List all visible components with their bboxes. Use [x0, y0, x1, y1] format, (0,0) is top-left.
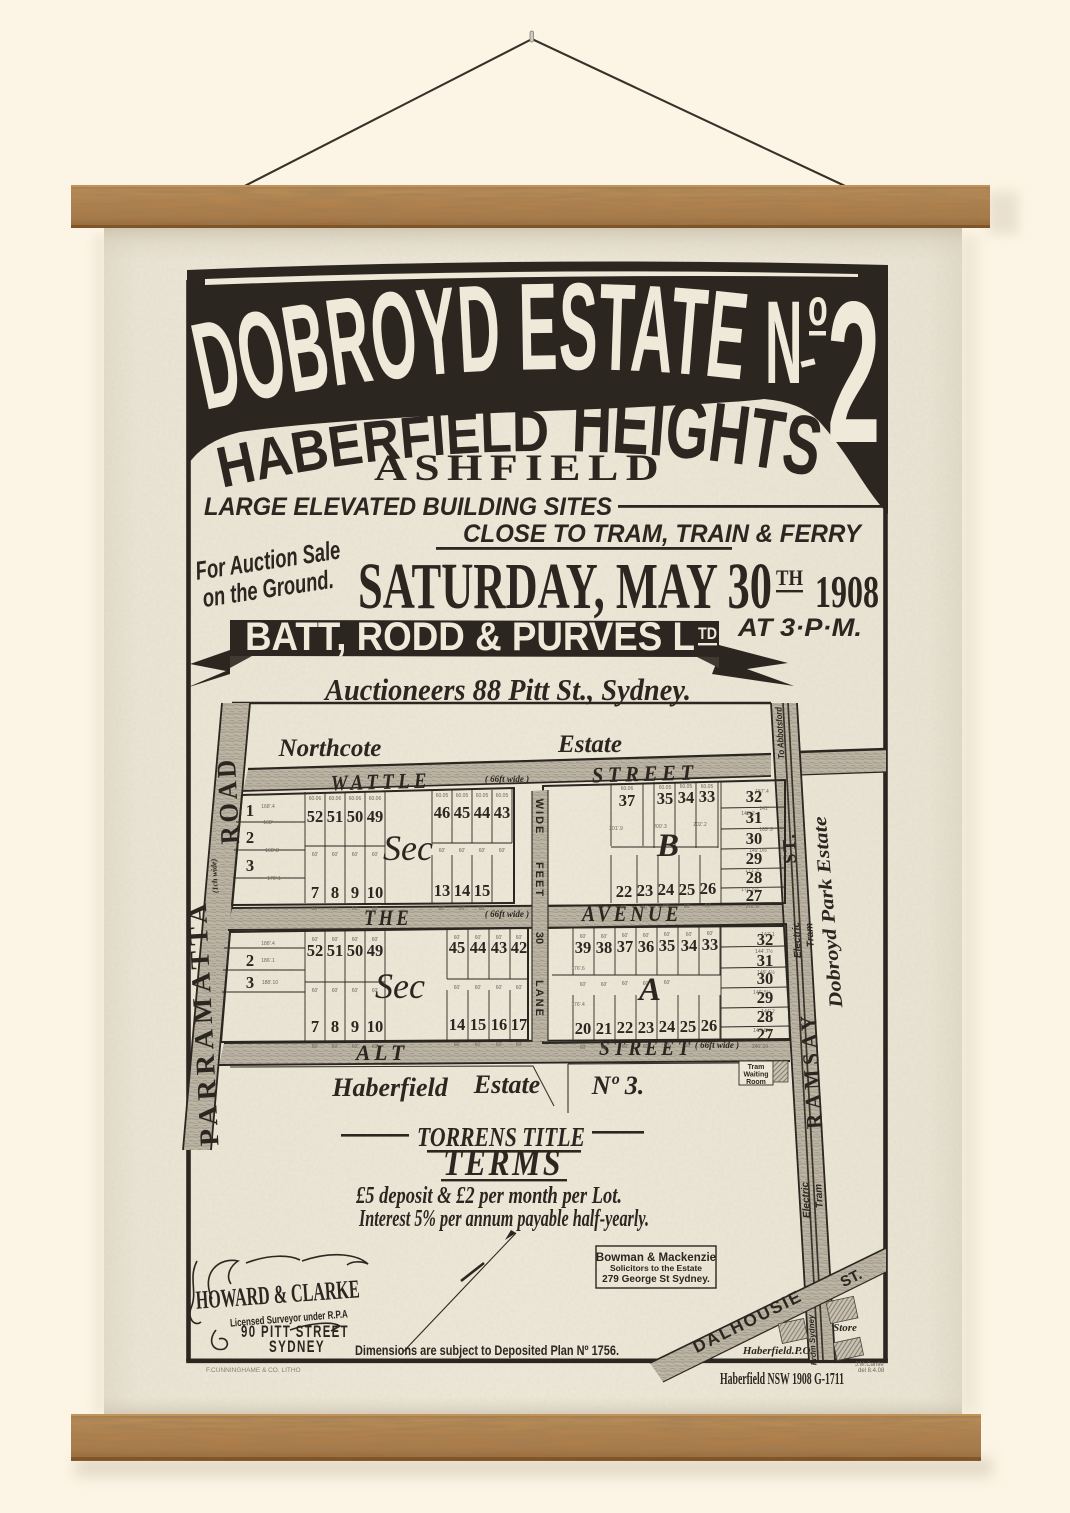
svg-text:168': 168'	[263, 820, 272, 826]
svg-text:60': 60'	[707, 931, 714, 937]
svg-text:26: 26	[700, 879, 717, 898]
svg-text:60': 60'	[664, 980, 671, 986]
svg-text:60': 60'	[621, 905, 628, 911]
svg-text:51: 51	[327, 807, 344, 826]
svg-text:60': 60'	[372, 852, 379, 858]
svg-text:60': 60'	[352, 906, 359, 912]
svg-text:43: 43	[494, 803, 511, 822]
svg-text:60.06: 60.06	[369, 796, 382, 802]
svg-text:37: 37	[617, 937, 634, 956]
svg-text:Electric: Electric	[800, 1181, 813, 1218]
svg-text:Store: Store	[833, 1322, 857, 1334]
svg-text:7: 7	[311, 883, 319, 902]
svg-text:CLOSE TO TRAM, TRAIN & FERRY: CLOSE TO TRAM, TRAIN & FERRY	[463, 520, 863, 548]
svg-text:44: 44	[474, 803, 491, 822]
svg-text:49: 49	[367, 807, 384, 826]
svg-text:LARGE ELEVATED BUILDING SITES: LARGE ELEVATED BUILDING SITES	[204, 493, 612, 521]
svg-text:168'.4: 168'.4	[261, 804, 275, 810]
svg-text:3: 3	[246, 973, 254, 992]
svg-text:170'.1: 170'.1	[267, 876, 281, 882]
svg-text:Haberfield: Haberfield	[331, 1073, 449, 1102]
svg-text:50: 50	[347, 807, 364, 826]
svg-text:N: N	[765, 277, 802, 409]
svg-text:Nº 3.: Nº 3.	[591, 1071, 645, 1100]
svg-text:176'.6: 176'.6	[571, 966, 585, 972]
svg-text:o: o	[808, 279, 828, 337]
svg-text:23: 23	[637, 881, 654, 900]
svg-text:60': 60'	[622, 981, 629, 987]
svg-text:149'.4½: 149'.4½	[757, 969, 775, 976]
svg-text:60.05: 60.05	[659, 785, 672, 791]
svg-text:1: 1	[246, 801, 254, 820]
svg-text:( 66ft wide ): ( 66ft wide )	[485, 774, 529, 784]
svg-text:60': 60'	[516, 985, 523, 991]
svg-text:35: 35	[659, 936, 676, 955]
svg-text:60': 60'	[496, 985, 503, 991]
svg-text:60': 60'	[332, 1044, 339, 1050]
svg-text:60': 60'	[706, 1042, 713, 1048]
svg-text:(1ch wide): (1ch wide)	[209, 858, 220, 893]
svg-text:14: 14	[449, 1015, 466, 1034]
svg-text:60': 60'	[459, 848, 466, 854]
svg-text:2: 2	[246, 828, 254, 847]
svg-text:33: 33	[702, 935, 719, 954]
svg-text:10: 10	[367, 1017, 384, 1036]
svg-text:60': 60'	[352, 937, 359, 943]
svg-text:24: 24	[659, 1017, 676, 1036]
svg-text:60': 60'	[601, 934, 608, 940]
svg-text:60': 60'	[332, 852, 339, 858]
svg-text:Haberfield.P.O.: Haberfield.P.O.	[742, 1345, 813, 1357]
svg-text:60': 60'	[312, 852, 319, 858]
svg-text:15: 15	[474, 881, 491, 900]
svg-text:9: 9	[351, 883, 359, 902]
svg-text:25: 25	[679, 880, 696, 899]
svg-text:60': 60'	[684, 904, 691, 910]
svg-text:144'.2: 144'.2	[761, 1009, 775, 1015]
svg-text:176'.4: 176'.4	[571, 1002, 585, 1008]
svg-text:37: 37	[619, 791, 636, 810]
svg-text:240'.10: 240'.10	[752, 1044, 768, 1050]
svg-text:B: B	[656, 828, 679, 864]
svg-text:60': 60'	[643, 933, 650, 939]
svg-text:TD: TD	[698, 624, 717, 643]
svg-text:60': 60'	[372, 1044, 379, 1050]
svg-text:Dimensions are subject to: Dimensions are subject to Deposited Plan…	[355, 1342, 619, 1358]
svg-text:60': 60'	[454, 1042, 461, 1048]
svg-text:45: 45	[454, 803, 471, 822]
svg-text:146'.2: 146'.2	[741, 811, 755, 817]
svg-text:60': 60'	[439, 848, 446, 854]
svg-text:A: A	[637, 972, 661, 1008]
svg-text:Solicitors to the Estate: Solicitors to the Estate	[610, 1263, 702, 1273]
svg-text:188'.10: 188'.10	[262, 980, 278, 986]
svg-text:146'.5½: 146'.5½	[753, 989, 771, 996]
svg-text:141': 141'	[759, 806, 768, 812]
svg-text:34: 34	[678, 788, 695, 807]
svg-text:9: 9	[351, 1017, 359, 1036]
svg-text:178'.6: 178'.6	[745, 904, 759, 910]
svg-text:168'.8: 168'.8	[265, 848, 279, 854]
svg-text:Tram: Tram	[813, 1183, 825, 1208]
svg-text:BATT, RODD & PURVES L: BATT, RODD & PURVES L	[245, 615, 695, 659]
svg-text:60': 60'	[475, 985, 482, 991]
svg-text:17: 17	[511, 1015, 528, 1034]
svg-text:60': 60'	[496, 1042, 503, 1048]
svg-text:60.05: 60.05	[496, 793, 509, 799]
svg-text:Sec: Sec	[383, 828, 433, 868]
svg-text:60': 60'	[312, 937, 319, 943]
svg-text:50: 50	[347, 941, 364, 960]
svg-text:2: 2	[246, 951, 254, 970]
svg-text:60.05: 60.05	[701, 784, 714, 790]
svg-text:SYDNEY: SYDNEY	[269, 1338, 325, 1356]
svg-text:188'.4: 188'.4	[261, 941, 275, 947]
svg-text:149'.0½: 149'.0½	[749, 847, 767, 854]
svg-text:52: 52	[307, 941, 324, 960]
svg-text:60': 60'	[332, 988, 339, 994]
svg-text:ROAD: ROAD	[211, 755, 246, 844]
svg-text:LANE: LANE	[533, 980, 545, 1018]
svg-text:60': 60'	[622, 933, 629, 939]
svg-text:Estate: Estate	[473, 1070, 540, 1099]
svg-text:147'.8½: 147'.8½	[753, 1027, 771, 1034]
svg-text:60.06: 60.06	[621, 786, 634, 792]
svg-text:22: 22	[616, 882, 633, 901]
svg-text:60': 60'	[312, 1044, 319, 1050]
svg-text:del 8.4.08: del 8.4.08	[858, 1368, 885, 1374]
svg-text:TERMS: TERMS	[443, 1143, 563, 1184]
svg-text:60': 60'	[601, 982, 608, 988]
svg-text:Electric: Electric	[791, 921, 804, 958]
svg-text:60.06: 60.06	[349, 796, 362, 802]
svg-text:34: 34	[681, 936, 698, 955]
svg-text:Sec: Sec	[375, 966, 425, 1006]
svg-text:60': 60'	[372, 937, 379, 943]
svg-text:8: 8	[331, 883, 339, 902]
svg-text:60': 60'	[312, 906, 319, 912]
svg-text:60': 60'	[642, 905, 649, 911]
svg-text:10: 10	[367, 883, 384, 902]
svg-text:171'.3: 171'.3	[745, 868, 759, 874]
svg-text:26: 26	[701, 1016, 718, 1035]
svg-text:SATURDAY, MAY 30: SATURDAY, MAY 30	[358, 550, 772, 623]
svg-text:52: 52	[307, 807, 324, 826]
svg-text:Tram: Tram	[804, 922, 816, 947]
svg-text:60': 60'	[516, 1042, 523, 1048]
svg-text:60': 60'	[454, 935, 461, 941]
svg-text:39: 39	[575, 938, 592, 957]
svg-text:60': 60'	[622, 1044, 629, 1050]
svg-text:60': 60'	[352, 852, 359, 858]
svg-text:Northcote: Northcote	[278, 735, 382, 762]
svg-text:60': 60'	[685, 1043, 692, 1049]
svg-text:25: 25	[680, 1017, 697, 1036]
svg-text:60': 60'	[479, 906, 486, 912]
svg-text:F.CUNNINGHAME & CO. LITHO: F.CUNNINGHAME & CO. LITHO	[206, 1367, 301, 1374]
svg-text:60.06: 60.06	[329, 796, 342, 802]
svg-text:WIDE: WIDE	[533, 799, 545, 836]
svg-text:165'.9: 165'.9	[759, 827, 773, 833]
svg-text:22: 22	[617, 1018, 634, 1037]
svg-text:49: 49	[367, 941, 384, 960]
svg-text:60': 60'	[580, 982, 587, 988]
svg-text:13: 13	[434, 881, 451, 900]
svg-text:201'.9: 201'.9	[609, 826, 623, 832]
svg-text:60': 60'	[663, 904, 670, 910]
svg-text:60': 60'	[601, 1045, 608, 1051]
svg-text:15: 15	[470, 1015, 487, 1034]
svg-text:2: 2	[827, 259, 880, 485]
svg-text:51: 51	[327, 941, 344, 960]
svg-text:60': 60'	[312, 988, 319, 994]
svg-text:FEET: FEET	[533, 862, 545, 898]
svg-text:279 George St Sydney.: 279 George St Sydney.	[602, 1274, 710, 1285]
svg-text:1908: 1908	[815, 566, 879, 617]
svg-text:8: 8	[331, 1017, 339, 1036]
svg-text:60': 60'	[516, 935, 523, 941]
svg-text:20: 20	[575, 1019, 592, 1038]
svg-text:60': 60'	[372, 906, 379, 912]
svg-text:144'.7½: 144'.7½	[755, 948, 773, 955]
svg-text:AT 3·P·M.: AT 3·P·M.	[737, 614, 862, 642]
svg-text:60.05: 60.05	[680, 784, 693, 790]
svg-text:60': 60'	[580, 1045, 587, 1051]
svg-text:60': 60'	[496, 935, 503, 941]
svg-text:30: 30	[533, 932, 545, 944]
svg-text:60': 60'	[580, 934, 587, 940]
svg-text:60.05: 60.05	[476, 793, 489, 799]
svg-text:60': 60'	[454, 985, 461, 991]
svg-text:46: 46	[434, 803, 451, 822]
svg-text:Haberfield NSW 1908 G-1711: Haberfield NSW 1908 G-1711	[720, 1369, 844, 1388]
svg-text:60': 60'	[705, 903, 712, 909]
svg-text:Room: Room	[746, 1079, 766, 1086]
svg-text:14: 14	[454, 881, 471, 900]
svg-text:ASHFIELD: ASHFIELD	[374, 448, 666, 489]
svg-text:60': 60'	[352, 988, 359, 994]
svg-text:60': 60'	[499, 848, 506, 854]
svg-text:( 66ft wide ): ( 66ft wide )	[485, 909, 529, 919]
svg-text:60': 60'	[664, 932, 671, 938]
svg-text:Waiting: Waiting	[743, 1072, 768, 1079]
svg-text:23: 23	[638, 1018, 655, 1037]
svg-text:Estate: Estate	[557, 731, 622, 758]
svg-text:60': 60'	[664, 1043, 671, 1049]
svg-text:35: 35	[657, 789, 674, 808]
svg-text:60': 60'	[332, 937, 339, 943]
svg-text:60': 60'	[439, 906, 446, 912]
svg-text:170'.5½: 170'.5½	[741, 886, 759, 893]
svg-text:21: 21	[596, 1019, 613, 1038]
svg-text:Interest 5% per annum payable: Interest 5% per annum payable half-yearl…	[358, 1206, 649, 1232]
svg-text:60.05: 60.05	[436, 793, 449, 799]
svg-text:60': 60'	[352, 1044, 359, 1050]
svg-text:24: 24	[658, 880, 675, 899]
svg-text:60': 60'	[459, 906, 466, 912]
svg-text:147'.1: 147'.1	[761, 932, 775, 938]
svg-text:60.05: 60.05	[456, 793, 469, 799]
svg-text:202'.2: 202'.2	[693, 822, 707, 828]
svg-text:60.06: 60.06	[309, 796, 322, 802]
svg-text:60': 60'	[332, 906, 339, 912]
svg-text:186'.1: 186'.1	[261, 958, 275, 964]
svg-text:Tram: Tram	[748, 1064, 765, 1071]
svg-text:60': 60'	[479, 848, 486, 854]
svg-text:60': 60'	[475, 1042, 482, 1048]
svg-text:TH: TH	[776, 565, 803, 590]
svg-text:3: 3	[246, 856, 254, 875]
svg-text:60': 60'	[686, 932, 693, 938]
svg-text:38: 38	[596, 938, 613, 957]
svg-text:7: 7	[311, 1017, 319, 1036]
svg-text:36: 36	[638, 937, 655, 956]
svg-text:60': 60'	[643, 1044, 650, 1050]
svg-text:ALT: ALT	[354, 1040, 408, 1065]
svg-text:60': 60'	[475, 935, 482, 941]
svg-text:16: 16	[491, 1015, 508, 1034]
svg-text:157'.4: 157'.4	[755, 789, 769, 795]
